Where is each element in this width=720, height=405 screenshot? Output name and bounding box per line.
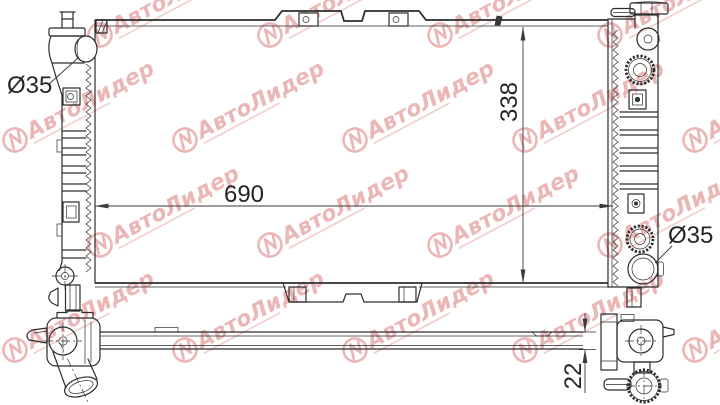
watermark-tile: АвтоЛидер [339, 56, 499, 157]
watermark-logo-monogram [432, 25, 450, 43]
watermark-logo-monogram [347, 130, 365, 148]
watermark-logo-monogram [7, 130, 25, 148]
watermark-logo-monogram [262, 25, 280, 43]
watermark-logo-monogram [7, 340, 25, 358]
watermark-brand-text: АвтоЛидер [191, 56, 329, 145]
watermark-tile: АвтоЛидер [679, 56, 720, 157]
dim-width-label: 690 [224, 181, 264, 208]
watermark-tile: АвтоЛидер [84, 161, 244, 262]
watermark-brand-text: АвтоЛидер [191, 266, 329, 355]
bottom-outlet-pipe [53, 343, 100, 402]
watermark-brand-text: АвтоЛидер [531, 56, 669, 145]
dim-height-label: 338 [496, 82, 523, 122]
radiator-drawing-svg: АвтоЛидерАвтоЛидерАвтоЛидерАвтоЛидерАвто… [0, 0, 720, 405]
watermark-brand-text: АвтоЛидер [361, 266, 499, 355]
watermark-logo-monogram [602, 25, 620, 43]
front-right-tank [608, 2, 668, 307]
watermark-logo-monogram [432, 235, 450, 253]
bottom-core-band [100, 328, 583, 350]
front-left-tank [49, 12, 97, 311]
front-view [49, 2, 668, 311]
front-core [95, 11, 608, 302]
watermark-tile: АвтоЛидер [169, 266, 329, 367]
watermark-brand-text: АвтоЛидер [531, 266, 669, 355]
watermark-logo-monogram [177, 130, 195, 148]
watermark-tile: АвтоЛидер [339, 266, 499, 367]
dim-core-height: 338 [496, 27, 523, 283]
watermark-tile: АвтоЛидер [254, 161, 414, 262]
dim-thickness-label: 22 [560, 363, 587, 390]
dim-inlet-label: Ø35 [7, 72, 52, 99]
dim-outlet-label: Ø35 [668, 222, 713, 249]
technical-drawing-canvas: АвтоЛидерАвтоЛидерАвтоЛидерАвтоЛидерАвто… [0, 0, 720, 405]
bottom-right-fitting [601, 314, 674, 404]
dim-inlet-diameter: Ø35 [7, 58, 78, 99]
watermark-tile: АвтоЛидер [169, 56, 329, 157]
watermark-tile: АвтоЛидер [679, 266, 720, 367]
watermark-logo-monogram [517, 130, 535, 148]
watermark-brand-text: АвтоЛидер [361, 56, 499, 145]
watermark-logo-monogram [687, 130, 705, 148]
watermark-tile: АвтоЛидер [509, 56, 669, 157]
watermark-logo-monogram [262, 235, 280, 253]
watermark-logo-monogram [687, 340, 705, 358]
watermark-tile: АвтоЛидер [0, 266, 159, 367]
watermark-tile: АвтоЛидер [424, 161, 584, 262]
watermark-logo-monogram [602, 235, 620, 253]
